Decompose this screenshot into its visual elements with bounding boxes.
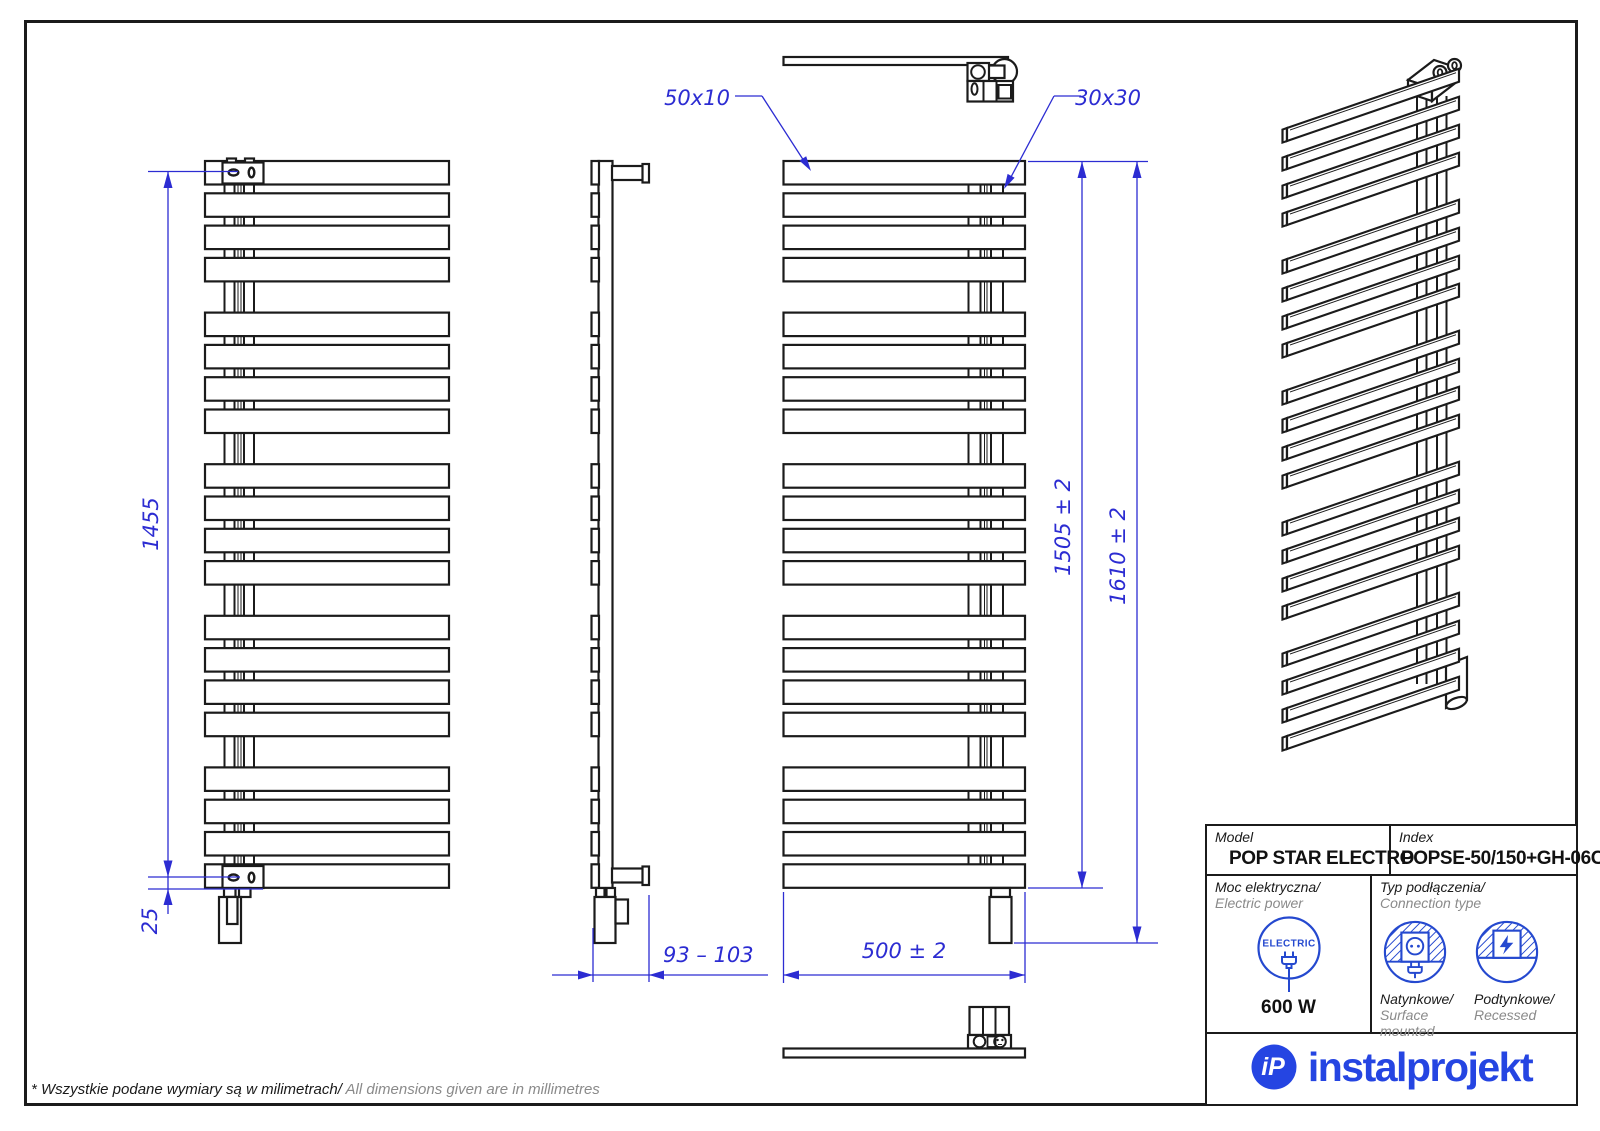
slat-end (592, 561, 600, 585)
side-view (592, 161, 650, 943)
isometric-view (1283, 59, 1469, 751)
slat-end (592, 680, 600, 704)
slat (784, 616, 1026, 640)
electric-badge-text: ELECTRIC (1262, 939, 1315, 950)
slat (784, 864, 1026, 888)
dim-height-overall: 1610 ± 2 (1106, 507, 1130, 605)
slat (205, 497, 449, 521)
slat-end (592, 193, 600, 217)
slat (784, 497, 1026, 521)
dim-height-axis: 1455 (139, 497, 163, 550)
side-view-heating-element (595, 888, 629, 943)
front-view (205, 159, 449, 944)
slat (205, 193, 449, 217)
footnote: * Wszystkie podane wymiary są w milimetr… (31, 1081, 600, 1098)
slat-end (592, 410, 600, 434)
slat (784, 377, 1026, 401)
slat (205, 345, 449, 369)
slat (205, 377, 449, 401)
dim-bottom-offset: 25 (138, 908, 162, 935)
slat (784, 713, 1026, 737)
logo-row: iP instalprojekt (1207, 1034, 1576, 1100)
slat (784, 161, 1026, 185)
power-cell: Moc elektryczna/ Electric power ELECTRIC… (1207, 876, 1372, 1032)
power-value: 600 W (1261, 997, 1316, 1019)
electric-icon: ELECTRIC (1256, 915, 1322, 995)
title-block-row-specs: Moc elektryczna/ Electric power ELECTRIC… (1207, 876, 1576, 1034)
plug-glyph (1408, 962, 1422, 978)
slat-end (592, 713, 600, 737)
model-value: POP STAR ELECTRO (1215, 848, 1381, 870)
dim-width: 500 ± 2 (862, 939, 946, 963)
slat (784, 345, 1026, 369)
dim-height-to-last-slat: 1505 ± 2 (1051, 478, 1075, 576)
slat (205, 529, 449, 553)
slat-end (592, 258, 600, 282)
side-view-top-bracket (612, 164, 649, 183)
recessed-icon (1474, 919, 1540, 985)
slat (784, 193, 1026, 217)
connection-cell: Typ podłączenia/ Connection type (1372, 876, 1576, 1032)
slat (784, 464, 1026, 488)
title-block-row-model: Model POP STAR ELECTRO Index POPSE-50/15… (1207, 826, 1576, 876)
index-cell: Index POPSE-50/150+GH-06C1 (1391, 826, 1600, 874)
slat (205, 800, 449, 824)
slat (784, 258, 1026, 282)
slat (205, 561, 449, 585)
surface-mounted-icon (1382, 919, 1448, 985)
connection-label: Typ podłączenia/ Connection type (1380, 879, 1568, 911)
label-slat-profile: 50x10 (664, 86, 730, 110)
index-label: Index (1399, 829, 1600, 845)
power-label: Moc elektryczna/ Electric power (1215, 879, 1362, 911)
slat (205, 680, 449, 704)
side-view-bottom-bracket (612, 867, 649, 886)
slat (205, 616, 449, 640)
title-block: Model POP STAR ELECTRO Index POPSE-50/15… (1205, 824, 1578, 1106)
slat (784, 561, 1026, 585)
top-plan-view (784, 57, 1018, 102)
slat (205, 648, 449, 672)
slat (205, 464, 449, 488)
slat (784, 800, 1026, 824)
slat-end (592, 648, 600, 672)
iso-collector-tubes (1417, 96, 1447, 684)
slat-end (592, 377, 600, 401)
slat-end (592, 464, 600, 488)
slat (784, 410, 1026, 434)
iso-slats (1283, 69, 1460, 751)
slat (205, 313, 449, 337)
logo-monogram: iP (1261, 1053, 1285, 1081)
slat-end (592, 313, 600, 337)
slat-end (592, 497, 600, 521)
front-view-heating-element (219, 888, 251, 943)
model-label: Model (1215, 829, 1381, 845)
surface-mounted-label: Natynkowe/ Surface mounted (1380, 991, 1474, 1039)
side-view-collector (599, 161, 613, 888)
front-view-right-slats (784, 161, 1026, 888)
slat (784, 529, 1026, 553)
slat (205, 767, 449, 791)
slat-end (592, 529, 600, 553)
slat (784, 648, 1026, 672)
slat (784, 832, 1026, 856)
slat-end (592, 161, 600, 185)
bottom-plan-view (784, 1007, 1026, 1058)
slat (784, 767, 1026, 791)
front-view-right (784, 161, 1026, 943)
index-value: POPSE-50/150+GH-06C1 (1399, 848, 1600, 870)
drawing-sheet: 1455 25 93 – 103 1505 ± 2 1610 ± 2 (0, 0, 1600, 1131)
slat-end (592, 767, 600, 791)
front-view-slats (205, 161, 449, 888)
slat (784, 226, 1026, 250)
slat-end (592, 616, 600, 640)
slat (205, 258, 449, 282)
slat (205, 832, 449, 856)
slat-end (592, 800, 600, 824)
instalprojekt-logo-icon: iP (1251, 1044, 1297, 1090)
slat (205, 410, 449, 434)
front-view-right-heating-element (990, 888, 1012, 943)
slat (205, 226, 449, 250)
slat (784, 313, 1026, 337)
slat (205, 713, 449, 737)
dim-wall-distance: 93 – 103 (663, 943, 754, 967)
slat-end (592, 226, 600, 250)
recessed-label: Podtynkowe/ Recessed (1474, 991, 1568, 1039)
plug-glyph (1282, 952, 1296, 993)
slat-end (592, 345, 600, 369)
label-collector-profile: 30x30 (1075, 86, 1141, 110)
logo-wordmark: instalprojekt (1308, 1044, 1532, 1091)
model-cell: Model POP STAR ELECTRO (1207, 826, 1391, 874)
slat-end (592, 832, 600, 856)
slat (784, 680, 1026, 704)
slat-end (592, 864, 600, 888)
